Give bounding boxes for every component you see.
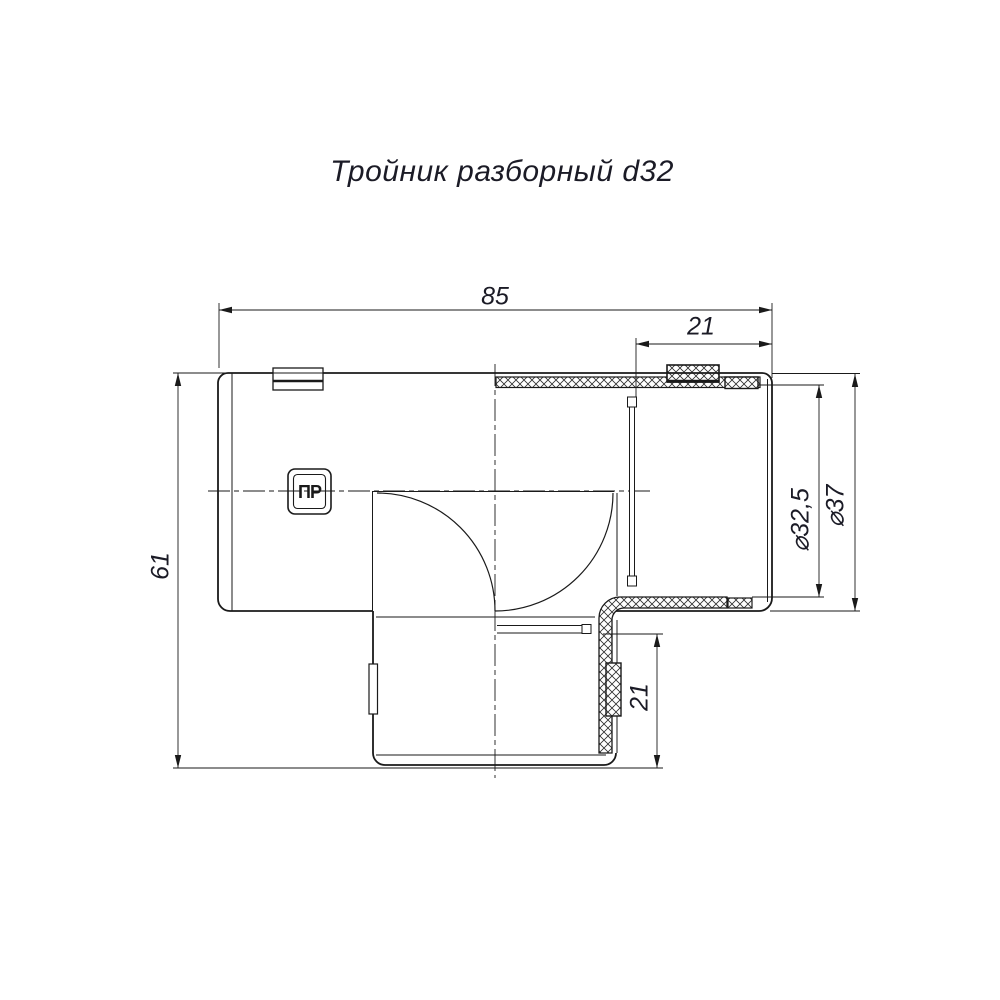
dim-inner-diameter: ⌀32,5 — [789, 488, 814, 552]
drawing-title: Тройник разборный d32 — [330, 157, 674, 187]
drawing-sheet: Тройник разборный d32 85 21 61 21 ⌀32,5 … — [0, 0, 1000, 1000]
spigot-wall-strip — [628, 397, 637, 586]
centerlines — [208, 364, 652, 778]
dim-overall-length: 85 — [481, 285, 509, 310]
dim-overall-height: 61 — [149, 552, 174, 580]
inner-geometry — [232, 373, 768, 755]
branch-tab — [369, 664, 378, 714]
part-marking-badge: ПР — [298, 483, 321, 501]
corner-seal-strip — [599, 597, 752, 753]
top-tab — [273, 368, 323, 390]
dim-outer-diameter: ⌀37 — [824, 485, 849, 528]
tee-fitting-section-view — [0, 0, 1000, 1000]
latch-blocks — [606, 365, 758, 716]
top-seal-strip — [496, 377, 760, 388]
dim-spigot-length-top: 21 — [687, 315, 715, 340]
dim-spigot-length-bottom: 21 — [628, 683, 653, 711]
